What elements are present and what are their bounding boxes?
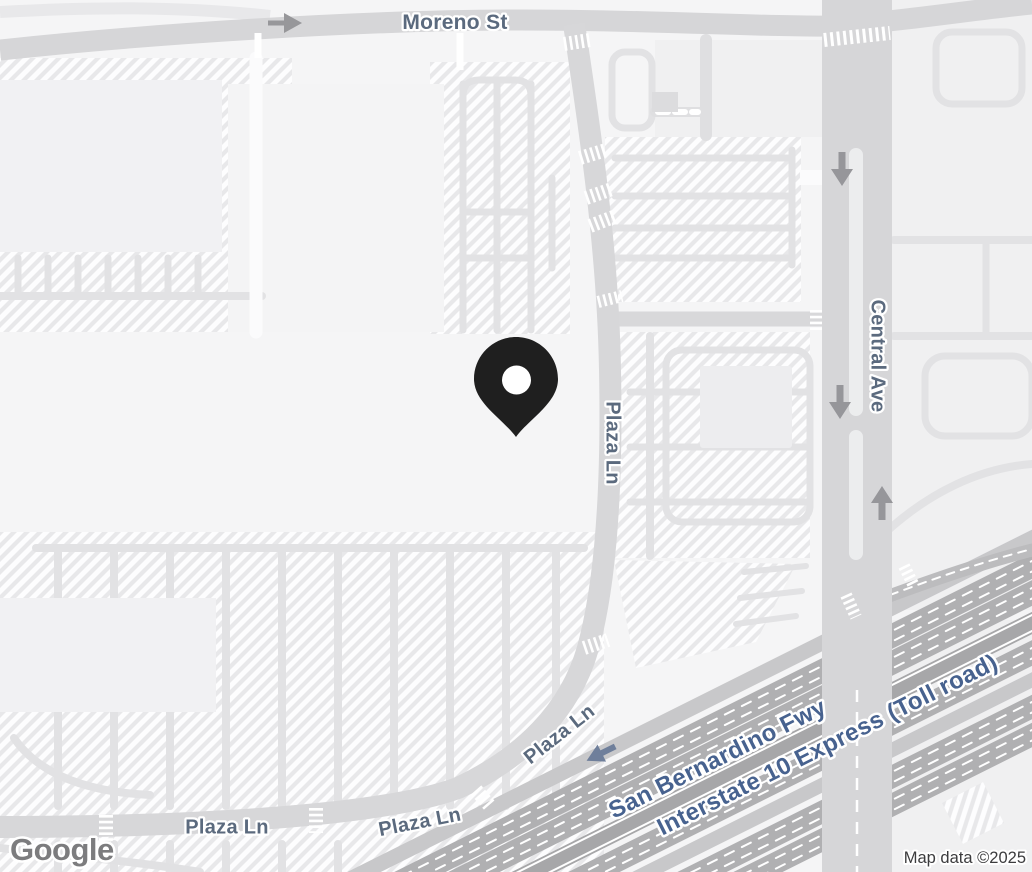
street-label-plaza-ln-bottom: Plaza Ln <box>185 816 269 838</box>
street-label-plaza-ln-vertical: Plaza Ln <box>602 401 624 485</box>
map-canvas[interactable]: Moreno St Plaza Ln Central Ave Plaza Ln … <box>0 0 1032 872</box>
map-data-attribution: Map data ©2025 <box>904 849 1026 867</box>
google-logo[interactable]: Google <box>10 832 114 867</box>
street-label-moreno-st: Moreno St <box>402 11 507 34</box>
street-label-central-ave: Central Ave <box>867 300 889 413</box>
east-district <box>892 0 1032 610</box>
